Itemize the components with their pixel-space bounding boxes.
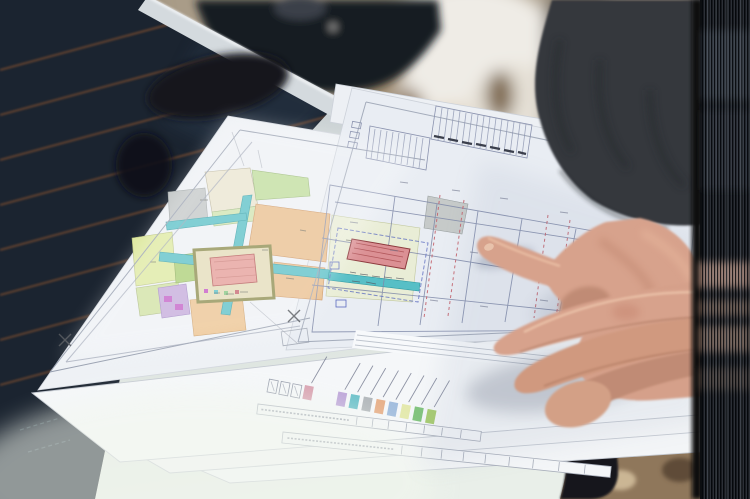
knuckle-redness	[612, 304, 640, 320]
dark-blob-small	[116, 133, 172, 197]
jacket-button	[329, 23, 338, 32]
photo-canvas	[0, 0, 750, 499]
photo-scene	[0, 0, 750, 499]
glitch-band	[692, 0, 750, 499]
glitch-stripes	[702, 0, 750, 499]
